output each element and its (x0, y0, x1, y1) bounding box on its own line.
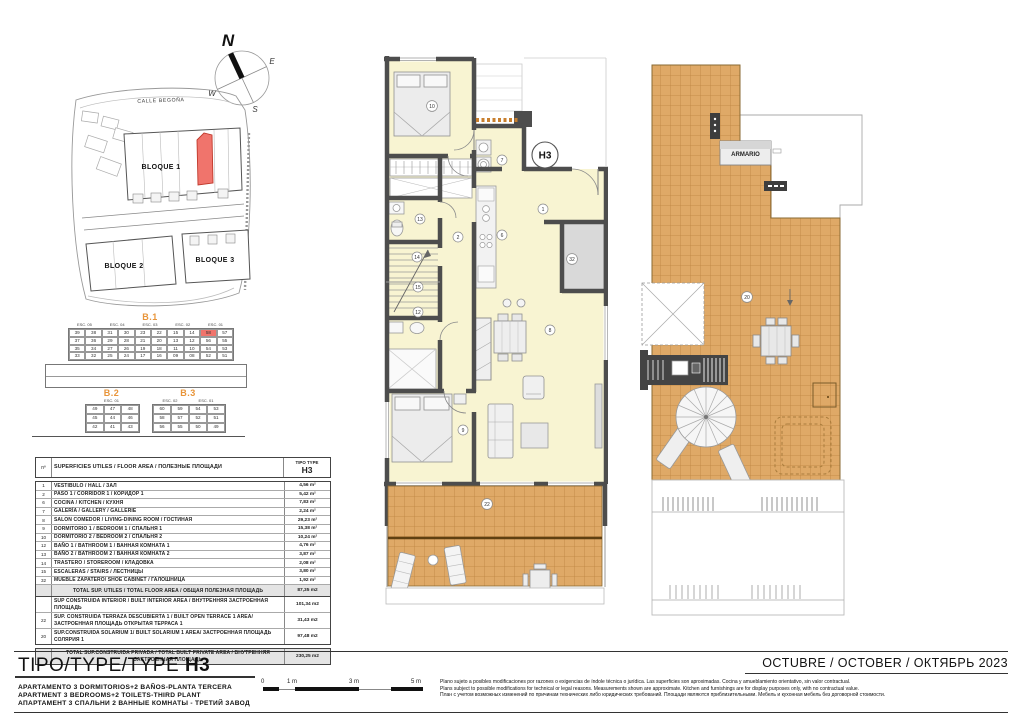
area-row: 9DORMITORIO 1 / BEDROOM 1 / СПАЛЬНЯ 115,… (36, 524, 330, 533)
subtitle-ru: АПАРТАМЕНТ 3 СПАЛЬНИ 2 ВАННЫЕ КОМНАТЫ - … (18, 700, 258, 708)
solarium-plan: ARMARIO (640, 55, 872, 630)
b2-grid: 494748454446424143 (85, 404, 140, 433)
areas-rows: 1VESTIBULO / HALL / ЗАЛ4,56 m²2PASO 1 / … (36, 482, 330, 584)
area-row: 13BAÑO 2 / BATHROOM 2 / ВАННАЯ КОМНАТА 2… (36, 550, 330, 559)
area-cell-desc: BAÑO 1 / BATHROOM 1 / ВАННАЯ КОМНАТА 1 (52, 543, 284, 549)
area-row: 15ESCALERAS / STAIRS / ЛЕСТНИЦЫ3,80 m² (36, 567, 330, 576)
room-number: 15 (415, 285, 421, 291)
apartment-cell: 19 (135, 345, 151, 353)
room-number: 8 (549, 328, 552, 334)
room-marker: 10 (427, 101, 438, 112)
apartment-cell: 58 (153, 414, 171, 423)
b3-esc-headers: ESC. 02 ESC. 01 (152, 398, 224, 403)
wardrobe-shelved (390, 178, 472, 198)
wardrobe-hangers (390, 159, 472, 176)
railings (652, 480, 844, 615)
scale-label: 3 m (349, 679, 359, 685)
apartment-cell: 51 (207, 414, 225, 423)
b3-title: B.3 (152, 388, 224, 398)
room-number: 22 (484, 502, 490, 508)
apartment-cell: 26 (118, 345, 134, 353)
terrace (386, 486, 605, 604)
area-row: 10DORMITORIO 2 / BEDROOM 2 / СПАЛЬНЯ 210… (36, 533, 330, 542)
area-cell-no: 10 (36, 534, 52, 542)
area-cell-area: 3,87 m² (284, 551, 330, 559)
bloque-1: BLOQUE 1 (124, 128, 242, 203)
areas-header-desc: SUPERFICIES UTILES / FLOOR AREA / ПОЛЕЗН… (52, 458, 283, 477)
disclaimer-ru: План с учетом возможных изменений по при… (440, 692, 1008, 699)
apartment-cell: 25 (102, 352, 118, 360)
area-cell-area: 4,56 m² (284, 482, 330, 490)
apartment-cell: 55 (217, 337, 233, 345)
esc-header: ESC. 05 (68, 322, 101, 327)
esc-header: ESC. 02 (166, 322, 199, 327)
unit-label: H3 (539, 151, 552, 162)
bloque-2-label: BLOQUE 2 (105, 263, 144, 270)
type-code: H3 (302, 465, 313, 475)
area-cell-no: 32 (36, 577, 52, 585)
area-cell-area: 15,38 m² (284, 525, 330, 533)
apartment-cell: 20 (151, 337, 167, 345)
area-cell-area: 2,24 m² (284, 508, 330, 516)
apartment-cell: 29 (102, 337, 118, 345)
row-desc: SUP CONSTRUIDA INTERIOR / BUILT INTERIOR… (52, 598, 284, 611)
b1-empty-rows (45, 364, 247, 388)
bloque-3: BLOQUE 3 (182, 230, 250, 283)
room-marker: 6 (497, 230, 507, 240)
apartment-cell: 44 (104, 414, 122, 423)
apartment-cell: 54 (189, 405, 207, 414)
apartment-cell: 28 (118, 337, 134, 345)
room-marker: 2 (453, 232, 463, 242)
apartment-cell: 17 (135, 352, 151, 360)
highlighted-unit (197, 133, 213, 185)
areas-header-type: TIPO TYPE H3 (283, 458, 330, 477)
apartment-cell: 36 (85, 337, 101, 345)
apartment-cell: 41 (104, 423, 122, 432)
type-code: H3 (185, 655, 210, 676)
apartment-cell: 55 (171, 423, 189, 432)
apartment-cell: 16 (151, 352, 167, 360)
b1-grid: 3938313023221514585737362928212013125655… (68, 328, 234, 361)
kitchen-island (474, 318, 491, 380)
room-marker: 32 (567, 254, 578, 265)
room-marker: 15 (413, 282, 423, 292)
apartment-cell: 24 (118, 352, 134, 360)
bed-double-2 (394, 72, 450, 136)
room-number: 10 (429, 104, 435, 110)
room-marker: 22 (482, 499, 493, 510)
areas-header: nº SUPERFICIES UTILES / FLOOR AREA / ПОЛ… (36, 458, 330, 477)
divider-line (32, 436, 245, 437)
area-cell-no: 6 (36, 499, 52, 507)
esc-header: ESC. 03 (134, 322, 167, 327)
site-plan: CALLE BEGOÑA BLOQUE 1 (58, 78, 258, 313)
area-cell-no: 12 (36, 542, 52, 550)
room-marker: 8 (545, 325, 555, 335)
areas-solarium: 20 SUP.CONSTRUIDA SOLARIUM 1/ BUILT SOLA… (36, 628, 330, 644)
apartment-cell: 49 (86, 405, 104, 414)
room-marker: 9 (458, 425, 468, 435)
apartment-cell: 33 (69, 352, 85, 360)
tv-sideboard (595, 384, 602, 448)
areas-total-utiles: TOTAL SUP. UTILES / TOTAL FLOOR AREA / О… (36, 584, 330, 596)
b2-esc-headers: ESC. 01 (85, 398, 138, 403)
issue-date: OCTUBRE / OCTOBER / ОКТЯБРЬ 2023 (762, 656, 1008, 670)
subtitle-es: APARTAMENTO 3 DORMITORIOS+2 BAÑOS-PLANTA… (18, 684, 258, 692)
bloque-3-label: BLOQUE 3 (196, 257, 235, 264)
compass-needle-icon (231, 54, 242, 79)
apartment-cell: 51 (217, 352, 233, 360)
vent-marker (764, 181, 787, 191)
total-desc: TOTAL SUP. UTILES / TOTAL FLOOR AREA / О… (52, 588, 284, 594)
apartment-cell: 23 (135, 329, 151, 337)
apartment-cell: 31 (102, 329, 118, 337)
scale-label: 0 (261, 679, 264, 685)
area-cell-desc: COCINA / KITCHEN / КУХНЯ (52, 500, 284, 506)
areas-terrace: 22 SUP. CONSTRUIDA TERRAZA DESCUBIERTA 1… (36, 612, 330, 628)
areas-table: nº SUPERFICIES UTILES / FLOOR AREA / ПОЛ… (35, 457, 331, 665)
side-table (428, 555, 438, 565)
area-cell-desc: SALON COMEDOR / LIVING-DINING ROOM / ГОС… (52, 517, 284, 523)
apartment-cell: 53 (207, 405, 225, 414)
area-row: 8SALON COMEDOR / LIVING-DINING ROOM / ГО… (36, 515, 330, 524)
area-cell-no: 1 (36, 482, 52, 490)
legal-disclaimer: Plano sujeto a posibles modificaciones p… (440, 679, 1008, 699)
row-desc: SUP. CONSTRUIDA TERRAZA DESCUBIERTA 1 / … (52, 614, 284, 627)
apartment-cell: 56 (200, 337, 216, 345)
apartment-cell: 45 (86, 414, 104, 423)
area-row: 7GALERÍA / GALLERY / GALLERIE2,24 m² (36, 507, 330, 516)
title-underline (15, 676, 255, 678)
apartment-cell: 12 (184, 337, 200, 345)
room-number: 1 (542, 207, 545, 213)
titleblock-top-rule (14, 651, 1008, 652)
apartment-cell: 57 (217, 329, 233, 337)
area-cell-desc: DORMITORIO 1 / BEDROOM 1 / СПАЛЬНЯ 1 (52, 526, 284, 532)
apartment-cell: 38 (85, 329, 101, 337)
apartment-cell: 35 (69, 345, 85, 353)
area-cell-area: 5,42 m² (284, 491, 330, 499)
area-cell-area: 10,24 m² (284, 534, 330, 542)
room-number: 20 (744, 295, 750, 301)
apartment-cell: 43 (121, 423, 139, 432)
row-area: 97,48 m2 (284, 629, 330, 644)
areas-header-no: nº (36, 458, 52, 477)
row-area: 101,34 m2 (284, 597, 330, 612)
area-row: 6COCINA / KITCHEN / КУХНЯ7,83 m² (36, 498, 330, 507)
b1-title: B.1 (68, 312, 232, 322)
apartment-cell: 54 (200, 345, 216, 353)
apartment-cell: 39 (69, 329, 85, 337)
apartment-cell: 57 (171, 414, 189, 423)
room-number: 7 (501, 158, 504, 164)
area-cell-desc: DORMITORIO 2 / BEDROOM 2 / СПАЛЬНЯ 2 (52, 534, 284, 540)
sheet-title: TIPO/TYPE/TYPE H3 (18, 655, 210, 677)
armario-closet: ARMARIO (720, 141, 781, 165)
room-marker: 14 (412, 252, 422, 262)
scale-label: 5 m (411, 679, 421, 685)
area-cell-no: 13 (36, 551, 52, 559)
area-cell-area: 4,76 m² (284, 542, 330, 550)
apartment-cell: 30 (118, 329, 134, 337)
apartment-cell: 34 (85, 345, 101, 353)
area-cell-desc: PASO 1 / CORRIDOR 1 / КОРИДОР 1 (52, 491, 284, 497)
compass-north-label: N (222, 31, 235, 50)
area-row: 1VESTIBULO / HALL / ЗАЛ4,56 m² (36, 482, 330, 490)
room-marker: 13 (415, 214, 425, 224)
block-index-tables: B.1 ESC. 05 ESC. 04 ESC. 03 ESC. 02 ESC.… (30, 312, 330, 447)
row-area: 31,43 m2 (284, 613, 330, 628)
area-cell-no: 9 (36, 525, 52, 533)
area-cell-no: 14 (36, 559, 52, 567)
room-marker: 1 (538, 204, 548, 214)
coffee-table (521, 423, 548, 448)
apartment-cell: 08 (184, 352, 200, 360)
area-cell-desc: ESCALERAS / STAIRS / ЛЕСТНИЦЫ (52, 569, 284, 575)
esc-header: ESC. 01 (188, 398, 224, 403)
type-label: TIPO/TYPE/TYPE (18, 655, 179, 676)
room-marker: 7 (497, 155, 507, 165)
apartment-cell: 47 (104, 405, 122, 414)
area-cell-desc: MUEBLE ZAPATERO/ SHOE CABINET / ГАЛОШНИЦ… (52, 577, 284, 583)
room-number: 13 (417, 217, 423, 223)
area-cell-no: 8 (36, 516, 52, 524)
area-cell-area: 7,83 m² (284, 499, 330, 507)
titleblock-bottom-rule (14, 712, 1008, 713)
esc-header: ESC. 02 (152, 398, 188, 403)
apartment-cell: 37 (69, 337, 85, 345)
area-cell-area: 3,80 m² (284, 568, 330, 576)
area-cell-area: 29,23 m² (284, 516, 330, 524)
date-underline (745, 673, 1008, 674)
area-row: 12BAÑO 1 / BATHROOM 1 / ВАННАЯ КОМНАТА 1… (36, 541, 330, 550)
area-cell-desc: BAÑO 2 / BATHROOM 2 / ВАННАЯ КОМНАТА 2 (52, 551, 284, 557)
room-number: 32 (569, 257, 575, 263)
armchair (523, 376, 544, 399)
skylight (642, 283, 704, 345)
b1-esc-headers: ESC. 05 ESC. 04 ESC. 03 ESC. 02 ESC. 01 (68, 322, 232, 327)
apartment-cell: 14 (184, 329, 200, 337)
area-cell-area: 2,08 m² (284, 559, 330, 567)
apartment-floor-plan: 10 7 1 13 2 14 6 32 15 12 8 9 22 H3 (384, 56, 608, 612)
outdoor-kitchen (640, 350, 728, 390)
apartment-cell: 18 (151, 345, 167, 353)
apartment-cell: 46 (121, 414, 139, 423)
floorplan-sheet: N E W S CALLE BEGOÑA (0, 0, 1024, 724)
esc-header: ESC. 01 (199, 322, 232, 327)
room-number: 12 (415, 310, 421, 316)
apartment-cell: 50 (189, 423, 207, 432)
row-no: 22 (36, 613, 52, 628)
terrace-apron (386, 588, 604, 604)
area-row: 32MUEBLE ZAPATERO/ SHOE CABINET / ГАЛОШН… (36, 576, 330, 585)
room-number: 14 (414, 255, 420, 261)
area-cell-no: 2 (36, 491, 52, 499)
sheet-subtitles: APARTAMENTO 3 DORMITORIOS+2 BAÑOS-PLANTA… (18, 684, 258, 709)
area-row: 2PASO 1 / CORRIDOR 1 / КОРИДОР 15,42 m² (36, 490, 330, 499)
scale-label: 1 m (287, 679, 297, 685)
bloque-2: BLOQUE 2 (86, 236, 176, 291)
apartment-cell: 48 (121, 405, 139, 414)
apartment-cell: 21 (135, 337, 151, 345)
b3-grid: 605954535857525156555049 (152, 404, 226, 433)
apartment-cell: 09 (167, 352, 183, 360)
bloque-1-label: BLOQUE 1 (142, 164, 181, 171)
apartment-cell: 10 (184, 345, 200, 353)
apartment-cell: 60 (153, 405, 171, 414)
apartment-cell: 27 (102, 345, 118, 353)
scale-bar: 0 1 m 3 m 5 m (263, 681, 423, 695)
room-number: 6 (501, 233, 504, 239)
disclaimer-es: Plano sujeto a posibles modificaciones p… (440, 679, 1008, 686)
compass-east-label: E (269, 57, 275, 66)
apartment-cell: 11 (167, 345, 183, 353)
vent-marker (710, 113, 720, 139)
room-marker: 12 (413, 307, 423, 317)
apartment-cell: 52 (200, 352, 216, 360)
apartment-cell: 56 (153, 423, 171, 432)
kitchen-counter (476, 186, 496, 288)
apartment-cell: 15 (167, 329, 183, 337)
area-cell-no: 15 (36, 568, 52, 576)
armario-label: ARMARIO (731, 152, 760, 158)
area-cell-desc: VESTIBULO / HALL / ЗАЛ (52, 483, 284, 489)
room-number: 9 (462, 428, 465, 434)
apartment-cell: 59 (171, 405, 189, 414)
b2-title: B.2 (85, 388, 138, 398)
area-cell-desc: TRASTERO / STOREROOM / КЛАДОВКА (52, 560, 284, 566)
unit-badge: H3 (532, 142, 558, 168)
area-cell-area: 1,92 m² (284, 577, 330, 585)
sofa (488, 404, 513, 458)
apartment-cell: 53 (217, 345, 233, 353)
apartment-cell: 42 (86, 423, 104, 432)
room-marker: 20 (742, 292, 753, 303)
apartment-cell: 13 (167, 337, 183, 345)
site-road (82, 204, 244, 230)
row-no: 20 (36, 629, 52, 644)
apartment-cell: 32 (85, 352, 101, 360)
apartment-cell: 52 (189, 414, 207, 423)
apartment-cell: 58 (200, 329, 216, 337)
room-number: 2 (457, 235, 460, 241)
area-cell-no: 7 (36, 508, 52, 516)
esc-header: ESC. 01 (85, 398, 138, 403)
area-cell-desc: GALERÍA / GALLERY / GALLERIE (52, 508, 284, 514)
area-row: 14TRASTERO / STOREROOM / КЛАДОВКА2,08 m² (36, 558, 330, 567)
apartment-cell: 22 (151, 329, 167, 337)
esc-header: ESC. 04 (101, 322, 134, 327)
apartment-cell: 49 (207, 423, 225, 432)
total-area: 87,35 m2 (284, 585, 330, 596)
areas-built-interior: SUP CONSTRUIDA INTERIOR / BUILT INTERIOR… (36, 597, 330, 612)
row-desc: SUP.CONSTRUIDA SOLARIUM 1/ BUILT SOLARIU… (52, 630, 284, 643)
